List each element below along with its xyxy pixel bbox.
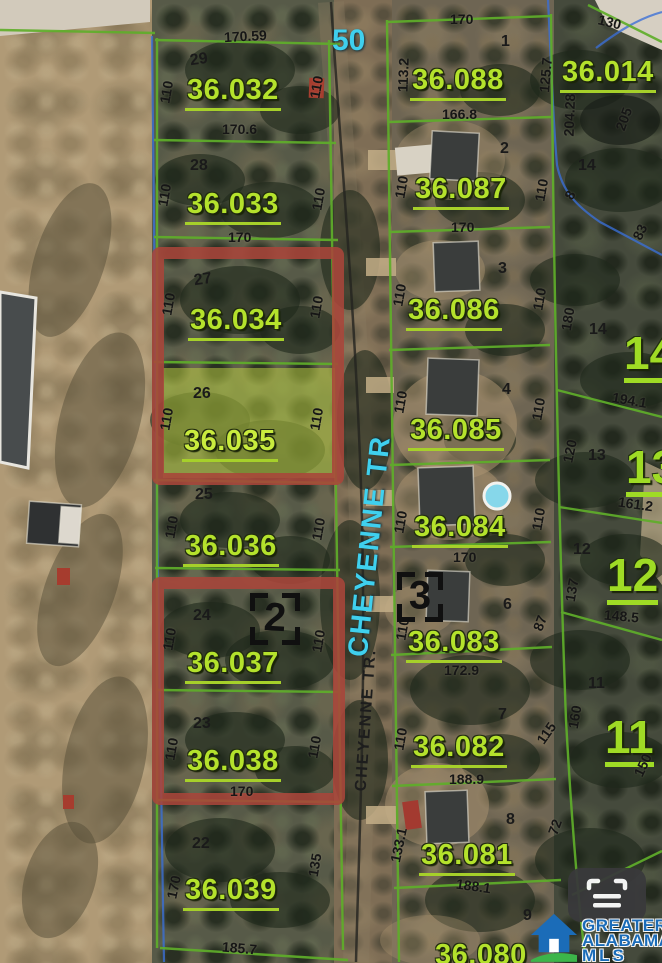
parcel-label-36037[interactable]: 36.037 <box>185 649 281 684</box>
dimension-label: 110 <box>309 629 327 654</box>
lot-number: 27 <box>193 271 213 289</box>
dimension-label: 72 <box>546 817 564 836</box>
lot-number: 1 <box>501 34 510 50</box>
dimension-label: 87 <box>531 613 549 632</box>
parcel-label-36014[interactable]: 36.014 <box>560 58 656 93</box>
dimension-label: 170.6 <box>222 122 257 136</box>
dimension-label: 170 <box>230 784 253 798</box>
parcel-label-36081[interactable]: 36.081 <box>419 841 515 876</box>
block-number-13: 13 <box>626 444 662 497</box>
street-name-label-small: CHEYENNE TR. <box>354 648 380 792</box>
parcel-label-36088[interactable]: 36.088 <box>410 66 506 101</box>
street-name-label: CHEYENNE TR <box>344 434 395 658</box>
parcel-label-36035[interactable]: 36.035 <box>182 427 278 462</box>
block-number-12: 12 <box>607 552 658 605</box>
aerial-parcel-map[interactable]: 50 CHEYENNE TR CHEYENNE TR. 36.032 36.03… <box>0 0 662 963</box>
dimension-label: 110 <box>157 80 175 105</box>
dimension-label: 110 <box>307 75 325 100</box>
dimension-label: 205 <box>613 106 634 133</box>
lot-number: 9 <box>523 908 532 924</box>
lot-number: 26 <box>193 386 211 402</box>
dimension-label: 110 <box>529 397 547 422</box>
dimension-label: 110 <box>157 407 175 432</box>
dimension-label: 110 <box>307 407 325 432</box>
lot-number: 2 <box>500 141 509 157</box>
road-width-label: 50 <box>332 26 365 56</box>
dimension-label: 110 <box>530 287 548 312</box>
dimension-label: 110 <box>390 283 408 308</box>
dimension-label: 110 <box>529 507 547 532</box>
dimension-label: 110 <box>155 183 173 208</box>
lot-number: 23 <box>193 716 211 732</box>
dimension-label: 170 <box>453 550 476 564</box>
lot-number: 29 <box>189 51 209 69</box>
dimension-label: 83 <box>630 222 649 242</box>
dimension-label: 110 <box>392 175 410 200</box>
dimension-label: 204.28 <box>562 93 577 136</box>
selection-marker-3: 3 <box>397 572 443 622</box>
dimension-label: 110 <box>162 515 180 540</box>
dimension-label: 110 <box>391 510 409 535</box>
dimension-label: 110 <box>307 295 325 320</box>
dimension-label: 170 <box>451 220 474 234</box>
lot-number: 13 <box>588 448 606 464</box>
lot-number: 28 <box>190 158 208 174</box>
dimension-label: 8 <box>562 188 578 202</box>
dimension-label: 148.5 <box>603 607 639 624</box>
dimension-label: 110 <box>160 627 178 652</box>
lot-number: 12 <box>573 542 591 558</box>
block-number-14: 14 <box>624 330 662 383</box>
lot-number: 14 <box>589 322 607 338</box>
dimension-label: 133.1 <box>388 826 409 863</box>
dimension-label: 172.9 <box>444 663 479 677</box>
parcel-label-36080[interactable]: 36.080 <box>433 941 529 963</box>
dimension-label: 188.1 <box>455 877 492 896</box>
dimension-label: 110 <box>391 390 409 415</box>
lot-number: 14 <box>578 158 596 174</box>
lot-number: 3 <box>498 261 507 277</box>
selection-marker-2: 2 <box>250 593 300 645</box>
dimension-label: 110 <box>162 737 180 762</box>
dimension-label: 125.7 <box>537 57 554 93</box>
dimension-label: 115 <box>534 720 558 747</box>
dimension-label: 160 <box>566 704 584 729</box>
dimension-label: 188.9 <box>449 772 484 786</box>
marker-number: 3 <box>409 574 431 619</box>
parcel-label-36085[interactable]: 36.085 <box>408 416 504 451</box>
dimension-label: 185.7 <box>221 939 257 956</box>
dimension-label: 110 <box>159 292 177 317</box>
lot-number: 25 <box>195 487 213 503</box>
parcel-label-36087[interactable]: 36.087 <box>413 175 509 210</box>
dimension-label: 110 <box>305 735 323 760</box>
parcel-label-36039[interactable]: 36.039 <box>183 876 279 911</box>
lot-number: 22 <box>192 836 210 852</box>
parcel-label-36038[interactable]: 36.038 <box>185 747 281 782</box>
map-labels-layer: 50 CHEYENNE TR CHEYENNE TR. 36.032 36.03… <box>0 0 662 963</box>
lot-number: 4 <box>502 382 511 398</box>
dimension-label: 166.8 <box>442 107 477 121</box>
dimension-label: 194.1 <box>611 390 648 410</box>
lot-number: 24 <box>193 608 211 624</box>
dimension-label: 110 <box>391 727 409 752</box>
parcel-label-36086[interactable]: 36.086 <box>406 296 502 331</box>
dimension-label: 120 <box>560 438 579 464</box>
dimension-label: 161.2 <box>617 495 654 514</box>
dimension-label: 110 <box>309 517 327 542</box>
lot-number: 6 <box>503 597 512 613</box>
parcel-label-36034[interactable]: 36.034 <box>188 306 284 341</box>
lot-number: 11 <box>588 676 605 692</box>
dimension-label: 170 <box>164 874 183 900</box>
dimension-label: 113.2 <box>396 58 411 93</box>
dimension-label: 170 <box>450 12 473 26</box>
parcel-label-36083[interactable]: 36.083 <box>406 628 502 663</box>
dimension-label: 180 <box>559 306 577 331</box>
dimension-label: 170 <box>228 230 251 244</box>
parcel-label-36084[interactable]: 36.084 <box>412 513 508 548</box>
parcel-label-36082[interactable]: 36.082 <box>411 733 507 768</box>
parcel-label-36033[interactable]: 36.033 <box>185 190 281 225</box>
parcel-label-36032[interactable]: 36.032 <box>185 76 281 111</box>
dimension-label: 110 <box>532 178 550 203</box>
parcel-label-36036[interactable]: 36.036 <box>183 532 279 567</box>
dimension-label: 135 <box>306 852 324 877</box>
dimension-label: 110 <box>309 187 327 212</box>
dimension-label: 170.59 <box>224 28 268 44</box>
dimension-label: 137 <box>563 577 581 602</box>
marker-number: 2 <box>263 595 288 641</box>
lot-number: 8 <box>506 812 515 828</box>
dimension-label: 130 <box>597 12 623 31</box>
lot-number: 7 <box>498 707 507 723</box>
